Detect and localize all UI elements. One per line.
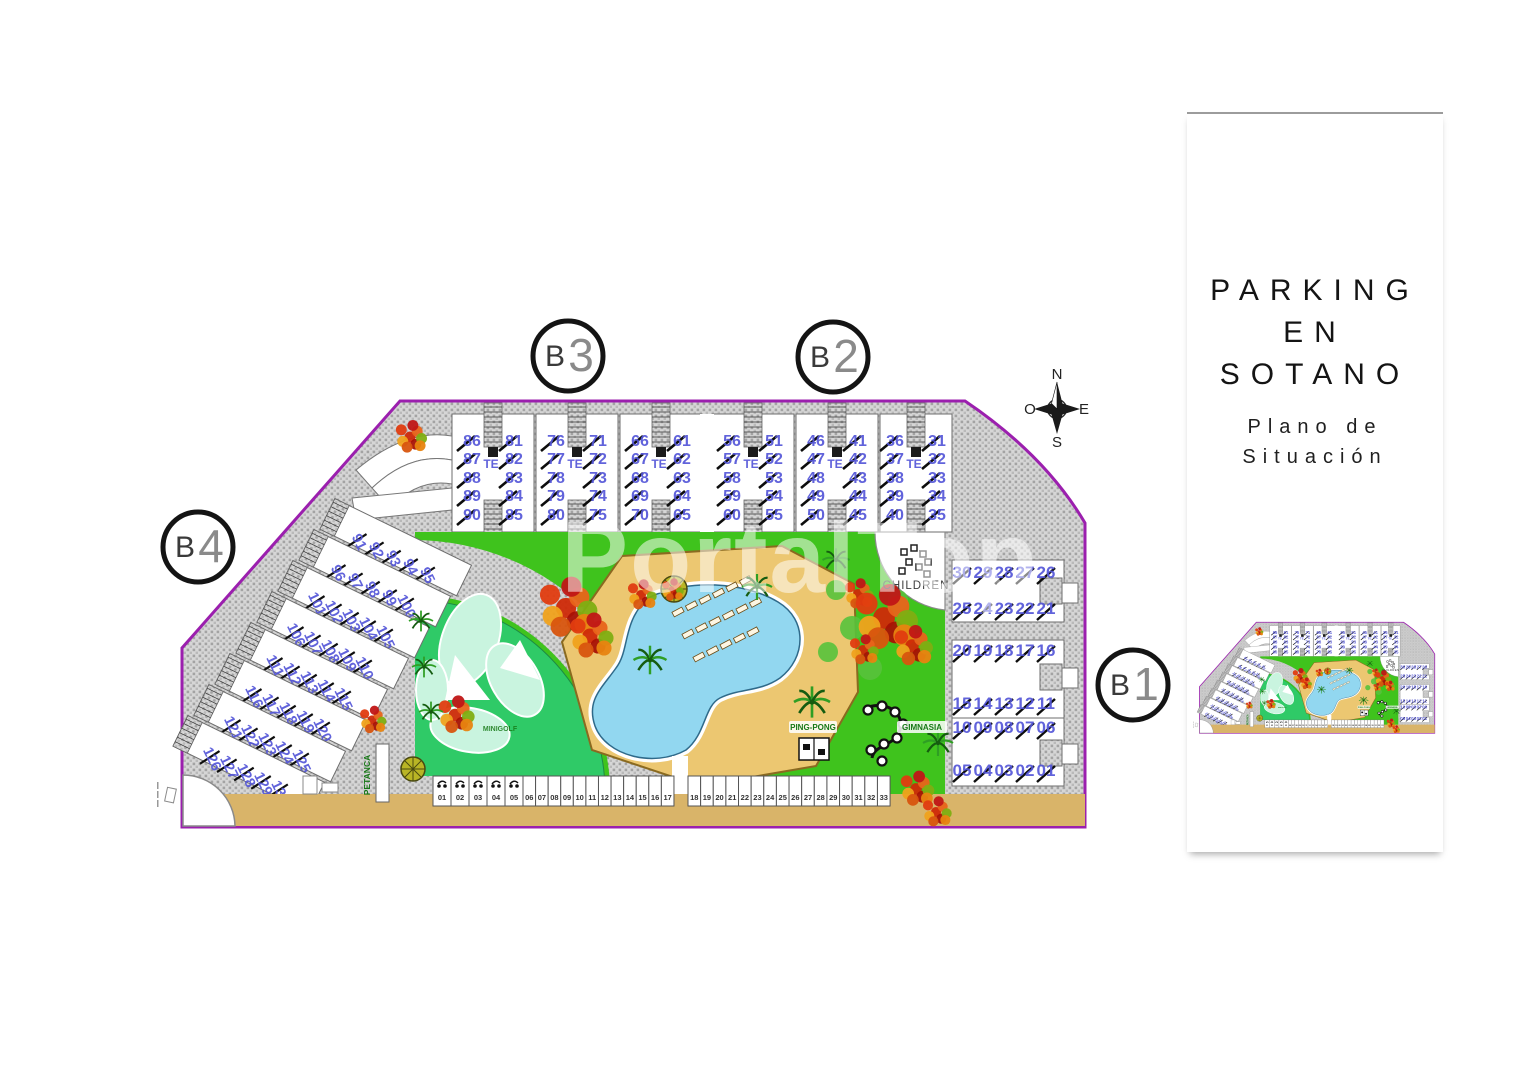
parking-space-11: 11 <box>586 776 599 806</box>
parking-space-02: 02 <box>451 776 469 806</box>
unit-number-32: 32 <box>928 451 946 468</box>
petanca-label: PETANCA <box>362 755 372 795</box>
unit-number-90: 90 <box>463 507 481 524</box>
unit-number-47: 47 <box>807 451 825 468</box>
label: B <box>810 341 830 374</box>
parking-space-32: 32 <box>865 776 878 806</box>
site-plan-svg: 86878889908182838485TE767778798071727374… <box>0 0 1529 1080</box>
label: 4 <box>198 520 224 572</box>
unit-number-04: 04 <box>974 761 993 780</box>
label: 12 <box>601 793 609 802</box>
ping-pong-table-icon <box>799 738 829 760</box>
unit-number-43: 43 <box>849 470 867 487</box>
unit-number-51: 51 <box>765 433 783 450</box>
unit-number-03: 03 <box>995 761 1014 780</box>
parking-space-17: 17 <box>661 776 674 806</box>
label: 19 <box>703 793 711 802</box>
unit-number-12: 12 <box>1016 694 1035 713</box>
parking-space-31: 31 <box>852 776 865 806</box>
unit-number-67: 67 <box>631 451 649 468</box>
block-label-b1: B1 <box>1098 650 1168 720</box>
compass-e: E <box>1079 401 1089 418</box>
label: B <box>175 531 195 564</box>
minimap <box>1193 622 1435 733</box>
unit-number-41: 41 <box>849 433 867 450</box>
label: 29 <box>829 793 837 802</box>
unit-number-56: 56 <box>723 433 741 450</box>
unit-number-71: 71 <box>589 433 607 450</box>
unit-number-84: 84 <box>505 488 523 505</box>
unit-number-78: 78 <box>547 470 565 487</box>
parking-space-25: 25 <box>776 776 789 806</box>
parking-row: 0102030405060708091011121314151617181920… <box>433 776 890 806</box>
unit-number-10: 10 <box>953 718 972 737</box>
label: B <box>1110 669 1130 702</box>
parking-space-19: 19 <box>701 776 714 806</box>
unit-number-31: 31 <box>928 433 946 450</box>
parking-space-03: 03 <box>469 776 487 806</box>
site-plan: 86878889908182838485TE767778798071727374… <box>157 401 1085 827</box>
label: 24 <box>766 793 775 802</box>
unit-number-15: 15 <box>953 694 972 713</box>
label: 18 <box>690 793 698 802</box>
label: 06 <box>525 793 533 802</box>
parking-space-33: 33 <box>877 776 890 806</box>
label: 25 <box>779 793 787 802</box>
parking-space-22: 22 <box>739 776 752 806</box>
unit-number-19: 19 <box>974 641 993 660</box>
unit-number-11: 11 <box>1037 694 1055 713</box>
unit-number-85: 85 <box>505 507 523 524</box>
label: 31 <box>854 793 862 802</box>
unit-number-61: 61 <box>673 433 691 450</box>
label: 14 <box>626 793 635 802</box>
label: 23 <box>753 793 761 802</box>
unit-number-13: 13 <box>995 694 1014 713</box>
minigolf-label: MINIGOLF <box>483 726 518 733</box>
core-label: TE <box>567 457 582 471</box>
parking-space-07: 07 <box>536 776 549 806</box>
watermark: PortalTop <box>561 502 1038 614</box>
unit-number-77: 77 <box>547 451 565 468</box>
unit-number-52: 52 <box>765 451 783 468</box>
unit-number-87: 87 <box>463 451 481 468</box>
parking-space-18: 18 <box>688 776 701 806</box>
core-label: TE <box>483 457 498 471</box>
label: 30 <box>842 793 850 802</box>
site-plan-page: PARKING EN SOTANO Plano de Situación <box>0 0 1529 1080</box>
unit-number-89: 89 <box>463 488 481 505</box>
unit-number-18: 18 <box>995 641 1014 660</box>
block-label-b2: B2 <box>798 322 868 392</box>
unit-number-08: 08 <box>995 718 1014 737</box>
label: 2 <box>833 330 859 382</box>
parking-space-20: 20 <box>713 776 726 806</box>
label: 32 <box>867 793 875 802</box>
label: 16 <box>651 793 659 802</box>
block-label-b4: B4 <box>163 512 233 582</box>
parking-space-06: 06 <box>523 776 536 806</box>
label: 10 <box>575 793 583 802</box>
label: 11 <box>588 793 596 802</box>
unit-number-14: 14 <box>974 694 993 713</box>
unit-number-86: 86 <box>463 433 481 450</box>
label: 02 <box>456 793 464 802</box>
compass-rose: NSEO <box>1024 366 1089 451</box>
ping-pong-label: PING-PONG <box>790 723 836 732</box>
label: 26 <box>791 793 799 802</box>
unit-number-17: 17 <box>1016 641 1035 660</box>
core-label: TE <box>743 457 758 471</box>
unit-number-57: 57 <box>723 451 741 468</box>
parking-space-09: 09 <box>561 776 574 806</box>
unit-number-48: 48 <box>807 470 825 487</box>
petanca-court <box>376 744 389 802</box>
parking-space-27: 27 <box>802 776 815 806</box>
label: 05 <box>510 793 518 802</box>
parking-space-29: 29 <box>827 776 840 806</box>
unit-number-66: 66 <box>631 433 649 450</box>
parking-space-21: 21 <box>726 776 739 806</box>
unit-number-42: 42 <box>849 451 867 468</box>
unit-number-62: 62 <box>673 451 691 468</box>
parking-space-05: 05 <box>505 776 523 806</box>
parking-space-16: 16 <box>649 776 662 806</box>
unit-number-21: 21 <box>1037 599 1056 618</box>
label: 3 <box>568 329 594 381</box>
label: 04 <box>492 793 501 802</box>
label: 17 <box>663 793 671 802</box>
unit-number-16: 16 <box>1037 641 1056 660</box>
label: 07 <box>538 793 546 802</box>
compass-o: O <box>1024 401 1036 418</box>
parking-space-14: 14 <box>624 776 637 806</box>
apartment-building: 86878889908182838485TE <box>452 403 534 545</box>
label: 01 <box>438 793 446 802</box>
unit-number-63: 63 <box>673 470 691 487</box>
parking-space-30: 30 <box>840 776 853 806</box>
unit-number-36: 36 <box>886 433 904 450</box>
label: 09 <box>563 793 571 802</box>
unit-number-46: 46 <box>807 433 825 450</box>
unit-number-02: 02 <box>1016 761 1035 780</box>
core-label: TE <box>651 457 666 471</box>
label: 21 <box>728 793 736 802</box>
unit-number-76: 76 <box>547 433 565 450</box>
unit-number-09: 09 <box>974 718 993 737</box>
unit-number-81: 81 <box>505 433 523 450</box>
unit-number-72: 72 <box>589 451 607 468</box>
label: 33 <box>880 793 888 802</box>
unit-number-37: 37 <box>886 451 904 468</box>
parking-space-01: 01 <box>433 776 451 806</box>
unit-number-83: 83 <box>505 470 523 487</box>
unit-number-68: 68 <box>631 470 649 487</box>
label: 13 <box>613 793 621 802</box>
core-label: TE <box>827 457 842 471</box>
parking-space-04: 04 <box>487 776 505 806</box>
parking-space-08: 08 <box>548 776 561 806</box>
watermark-text: PortalTop <box>561 502 1038 614</box>
unit-number-73: 73 <box>589 470 607 487</box>
parasol-icon <box>401 757 425 781</box>
label: 03 <box>474 793 482 802</box>
block-label-b3: B3 <box>533 321 603 391</box>
unit-number-05: 05 <box>953 761 972 780</box>
unit-number-58: 58 <box>723 470 741 487</box>
label: 15 <box>638 793 646 802</box>
label: 22 <box>741 793 749 802</box>
unit-number-33: 33 <box>928 470 946 487</box>
unit-number-06: 06 <box>1037 718 1056 737</box>
label: 08 <box>550 793 558 802</box>
unit-number-20: 20 <box>953 641 972 660</box>
parking-space-26: 26 <box>789 776 802 806</box>
unit-number-53: 53 <box>765 470 783 487</box>
label: B <box>545 340 565 373</box>
parking-space-15: 15 <box>636 776 649 806</box>
unit-number-26: 26 <box>1037 563 1056 582</box>
compass-n: N <box>1052 366 1063 383</box>
parking-space-28: 28 <box>814 776 827 806</box>
label: 20 <box>715 793 723 802</box>
compass-s: S <box>1052 434 1062 451</box>
parking-space-13: 13 <box>611 776 624 806</box>
unit-number-38: 38 <box>886 470 904 487</box>
parking-space-10: 10 <box>573 776 586 806</box>
gimnasia-label: GIMNASIA <box>902 723 942 732</box>
unit-number-01: 01 <box>1037 761 1056 780</box>
core-label: TE <box>906 457 921 471</box>
parking-space-24: 24 <box>764 776 777 806</box>
parking-space-12: 12 <box>598 776 611 806</box>
unit-number-07: 07 <box>1016 718 1035 737</box>
label: 27 <box>804 793 812 802</box>
label: 1 <box>1133 658 1159 710</box>
label: 28 <box>816 793 824 802</box>
unit-number-88: 88 <box>463 470 481 487</box>
unit-number-82: 82 <box>505 451 523 468</box>
parking-space-23: 23 <box>751 776 764 806</box>
